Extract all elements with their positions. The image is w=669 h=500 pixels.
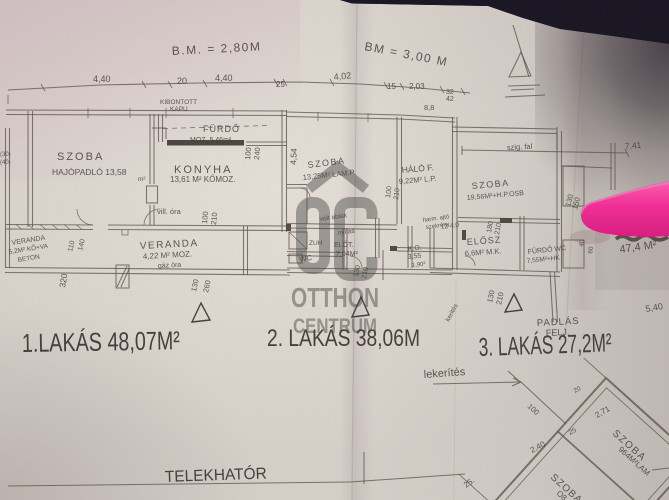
svg-text:1.LAKÁS 48,07M²: 1.LAKÁS 48,07M² — [22, 325, 181, 358]
svg-text:3. LAKÁS 27,2M²: 3. LAKÁS 27,2M² — [478, 327, 612, 362]
svg-text:2. LAKÁS 38,06M: 2. LAKÁS 38,06M — [267, 325, 420, 352]
